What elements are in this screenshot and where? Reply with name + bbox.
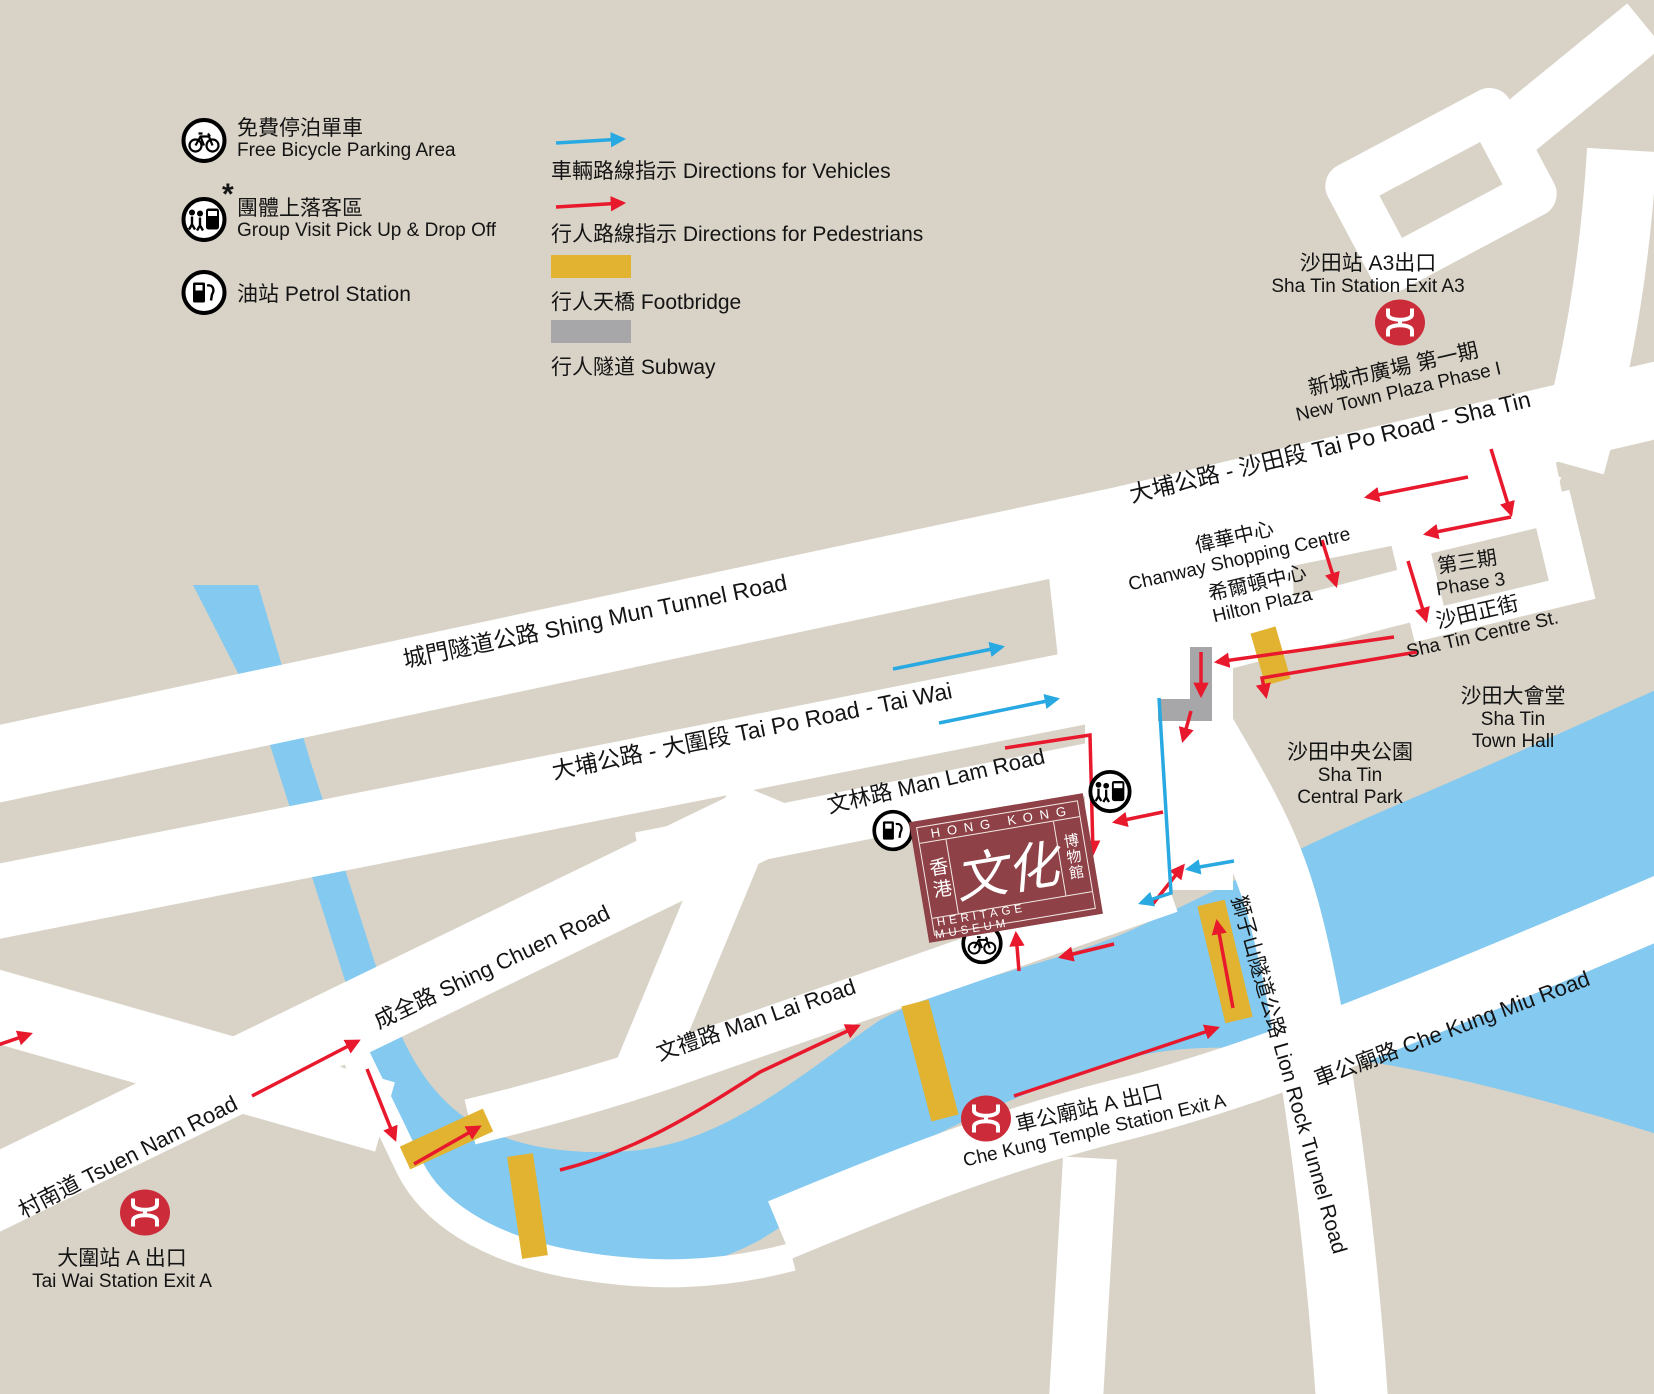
legend-footbridge-label: 行人天橋 Footbridge [551,286,741,316]
legend-footbridge-swatch [551,255,631,278]
sha-tin-station-en: Sha Tin Station Exit A3 [1271,276,1464,298]
road-hung-mui-kuk [1076,1158,1090,1394]
station-label-sha-tin: 沙田站 A3出口 Sha Tin Station Exit A3 [1271,252,1464,298]
tai-wai-station-en: Tai Wai Station Exit A [32,1271,212,1293]
mtr-icon-tai-wai [118,1188,172,1243]
legend-pedestrians-label: 行人路線指示 Directions for Pedestrians [551,218,923,248]
road-station-east [1570,150,1622,465]
legend-vehicles-label: 車輛路線指示 Directions for Vehicles [551,155,891,185]
group-visit-icon [180,196,228,249]
heritage-museum-logo-frame: HONG KONG 香港 文化 博物館 HERITAGE MUSEUM [916,800,1096,936]
legend-group-label-zh: 團體上落客區 [237,192,363,222]
footbridge-bend-south [520,1155,535,1257]
legend-group-label-en: Group Visit Pick Up & Drop Off [237,220,496,242]
legend-pedestrian-arrow [556,203,623,207]
legend-vehicle-arrow [556,139,623,143]
station-building-ring [1348,111,1533,269]
legend-subway-label: 行人隧道 Subway [551,351,716,381]
place-label-sha-tin-town-hall: 沙田大會堂 Sha Tin Town Hall [1461,685,1566,753]
central-park-en: Sha Tin Central Park [1287,765,1413,809]
legend-bicycle-label-en: Free Bicycle Parking Area [237,140,456,162]
petrol-station-icon [871,809,915,858]
bicycle-parking-icon [180,117,228,170]
station-label-tai-wai: 大圍站 A 出口 Tai Wai Station Exit A [32,1247,212,1293]
petrol-station-icon [180,269,228,322]
sha-tin-station-zh: 沙田站 A3出口 [1271,252,1464,276]
place-label-sha-tin-central-park: 沙田中央公園 Sha Tin Central Park [1287,741,1413,809]
group-visit-icon [1087,769,1133,820]
sha-tin-heritage-museum-map: 免費停泊單車 Free Bicycle Parking Area 團體上落客區 … [0,0,1654,1394]
mtr-icon-sha-tin [1373,298,1427,353]
town-hall-en: Sha Tin Town Hall [1461,709,1566,753]
legend-bicycle-label-zh: 免費停泊單車 [237,112,363,142]
legend-petrol-label: 油站 Petrol Station [237,278,411,308]
town-hall-zh: 沙田大會堂 [1461,685,1566,709]
central-park-zh: 沙田中央公園 [1287,741,1413,765]
tai-wai-station-zh: 大圍站 A 出口 [32,1247,212,1271]
legend-subway-swatch [551,320,631,343]
